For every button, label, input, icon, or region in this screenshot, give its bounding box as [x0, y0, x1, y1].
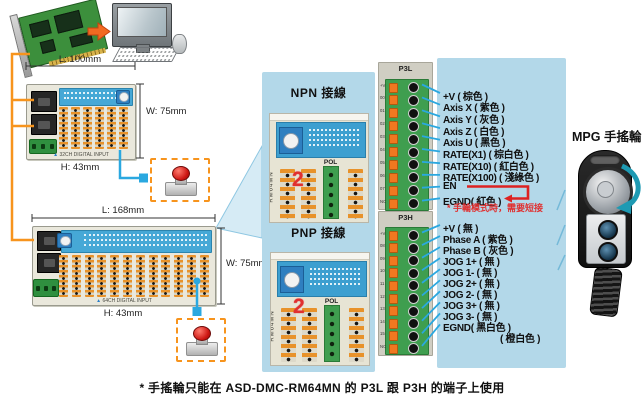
terminal-column — [71, 107, 80, 149]
keyboard — [112, 47, 180, 62]
callout-wedge — [216, 146, 262, 238]
pin-number-label: NC — [380, 344, 386, 349]
small-module-width-label: W: 75mm — [146, 106, 186, 117]
pin-number-label: 14 — [380, 319, 385, 324]
pin-number-label: 05 — [380, 160, 385, 165]
terminal-column — [59, 255, 68, 297]
pendant-face — [586, 214, 626, 264]
terminal-lever — [389, 256, 398, 266]
terminal-lever — [389, 83, 398, 93]
terminal-column — [161, 255, 170, 297]
terminal-column — [187, 255, 196, 297]
footer-note: * 手搖輪只能在 ASD-DMC-RM64MN 的 P3L 跟 P3H 的端子上… — [0, 379, 644, 396]
terminal-lever — [389, 134, 398, 144]
io-module-small: ▲ 32CH DIGITAL INPUT — [26, 84, 136, 160]
power-connector — [33, 279, 59, 297]
terminal-hole — [408, 121, 419, 132]
p3h-signal-label: ( 橙白色 ) — [500, 330, 540, 345]
terminal-column — [95, 107, 104, 149]
pin-number-label: 09 — [380, 256, 385, 261]
pin-number-label: 02 — [380, 122, 385, 127]
terminal-hole — [408, 230, 419, 241]
label-strip — [61, 230, 212, 253]
pin-number-label: 08 — [380, 244, 385, 249]
mouse — [172, 34, 187, 54]
terminal-lever — [389, 160, 398, 170]
terminal-column — [85, 255, 94, 297]
terminal-lever — [389, 173, 398, 183]
pin-number-label: NC — [380, 199, 386, 204]
terminal-column — [174, 255, 183, 297]
pnp-jumper-mark: 2 — [293, 297, 305, 317]
terminal-lever — [389, 331, 398, 341]
rotary-switch-icon — [116, 90, 130, 104]
terminal-lever — [389, 294, 398, 304]
terminal-lever — [389, 306, 398, 316]
large-module-length-label: L: 168mm — [75, 205, 171, 216]
terminal-row — [386, 229, 428, 240]
chip — [40, 39, 56, 54]
p3l-header: P3L — [379, 64, 432, 73]
terminal-hole — [408, 243, 419, 254]
p3h-header: P3H — [379, 213, 432, 222]
p3h-terminal-block: P3H +V0809101112131415NC — [378, 211, 433, 356]
estop-button — [172, 166, 190, 181]
terminal-row — [386, 242, 428, 253]
terminal-row — [386, 158, 428, 169]
chip — [29, 20, 52, 38]
terminal-lever — [389, 186, 398, 196]
terminal-lever — [389, 121, 398, 131]
npn-photo: RM64MN POL 2 — [269, 113, 369, 223]
pin-number-label: 03 — [380, 135, 385, 140]
terminal-hole — [408, 134, 419, 145]
mpg-pendant — [578, 150, 632, 268]
photo-label-strip — [276, 122, 366, 158]
wire-node — [139, 174, 148, 183]
large-module-height-label: H: 43mm — [78, 308, 168, 319]
handwheel-mode-note: * 手輪模式時，需要短接 — [447, 201, 543, 214]
terminal-lever — [389, 344, 398, 354]
terminal-row — [386, 94, 428, 105]
module-bottom-label: ▲ 64CH DIGITAL INPUT — [33, 298, 215, 304]
monitor — [112, 3, 172, 47]
terminal-field — [59, 107, 131, 149]
terminal-hole — [408, 95, 419, 106]
rj45-port — [31, 91, 57, 112]
terminal-row — [386, 107, 428, 118]
terminal-lever — [389, 319, 398, 329]
chip — [69, 32, 93, 48]
terminal-lever — [389, 281, 398, 291]
io-module-large: ▲ 64CH DIGITAL INPUT — [32, 226, 216, 306]
terminal-column — [59, 107, 68, 149]
terminal-row — [386, 81, 428, 92]
pin-number-label: 13 — [380, 307, 385, 312]
pin-number-label: 01 — [380, 109, 385, 114]
terminal-hole — [408, 82, 419, 93]
p3l-terminal-strip — [385, 79, 429, 211]
rotary-switch-icon — [57, 233, 72, 248]
small-module-length-label: L: 100mm — [40, 54, 120, 65]
estop-button — [193, 326, 211, 341]
pendant-handle-slot — [590, 155, 620, 164]
terminal-column — [97, 255, 106, 297]
terminal-row — [386, 292, 428, 303]
p3h-terminal-strip — [385, 227, 429, 355]
small-module-height-label: H: 43mm — [40, 162, 120, 173]
rotary-switch-icon — [280, 266, 304, 293]
terminal-column — [107, 107, 116, 149]
photo-label-strip — [277, 261, 367, 297]
terminal-column — [200, 255, 209, 297]
terminal-row — [386, 330, 428, 341]
terminal-hole — [408, 255, 419, 266]
terminal-column — [348, 169, 363, 219]
terminal-row — [386, 197, 428, 208]
pnp-section-title: PNP 接線 — [262, 224, 375, 241]
terminal-lever — [389, 199, 398, 209]
terminal-hole — [408, 185, 419, 196]
axis-selector-knob — [598, 220, 618, 240]
estop-box — [150, 158, 210, 202]
terminal-hole — [408, 159, 419, 170]
terminal-column — [136, 255, 145, 297]
rotary-switch-icon — [279, 127, 303, 154]
terminal-hole — [408, 147, 419, 158]
wiring-diagram: L: 100mm ▲ 32CH DIGITAL INPUT W: 75mm H:… — [0, 0, 644, 412]
terminal-row — [386, 267, 428, 278]
pin-number-label: 15 — [380, 332, 385, 337]
pin-number-label: 11 — [380, 281, 384, 286]
rj45-port — [31, 114, 57, 135]
pin-number-label: +V — [380, 83, 385, 88]
monitor-screen — [117, 7, 167, 37]
delta-logo: ▲ — [96, 298, 101, 304]
pol-label: POL — [324, 159, 337, 166]
pin-number-label: 00 — [380, 96, 385, 101]
delta-logo: ▲ — [53, 152, 58, 158]
p3l-signal-label: EN — [443, 181, 456, 192]
terminal-hole — [408, 172, 419, 183]
terminal-row — [386, 171, 428, 182]
terminal-row — [386, 120, 428, 131]
terminal-hole — [408, 343, 419, 354]
p3l-terminal-block: P3L +V0001020304050607NC — [378, 62, 433, 210]
wiring-mode-panel: NPN 接線 RM64MN POL 2 PNP 接線 RM64MN POL — [262, 72, 375, 372]
terminal-hole — [408, 268, 419, 279]
estop-box — [176, 318, 226, 362]
chip — [54, 10, 84, 34]
npn-section-title: NPN 接線 — [262, 84, 375, 101]
terminal-column — [349, 308, 364, 362]
terminal-row — [386, 133, 428, 144]
terminal-lever — [389, 268, 398, 278]
model-label: RM64MN — [269, 171, 275, 202]
rj45-port — [37, 253, 61, 273]
terminal-hole — [408, 198, 419, 209]
terminal-column — [110, 255, 119, 297]
module-bottom-label: ▲ 32CH DIGITAL INPUT — [27, 152, 135, 158]
npn-jumper-mark: 2 — [292, 170, 304, 190]
terminal-row — [386, 342, 428, 353]
terminal-hole — [408, 318, 419, 329]
p3l-signal-label: RATE(X100) ( 淺綠色 ) — [443, 169, 539, 184]
label-strip — [59, 88, 133, 106]
pol-label: POL — [325, 298, 338, 305]
terminal-lever — [389, 95, 398, 105]
mpg-cable-coil — [589, 266, 623, 317]
terminal-field — [59, 255, 215, 297]
terminal-row — [386, 305, 428, 316]
terminal-lever — [389, 231, 398, 241]
terminal-hole — [408, 306, 419, 317]
mpg-title: MPG 手搖輪 — [572, 126, 641, 145]
terminal-column — [123, 255, 132, 297]
model-label: RM64MN — [270, 310, 276, 341]
wire-node — [193, 307, 202, 316]
terminal-hole — [408, 293, 419, 304]
rate-selector-knob — [598, 242, 618, 262]
pin-number-label: 12 — [380, 294, 385, 299]
terminal-hole — [408, 331, 419, 342]
pin-number-label: +V — [380, 231, 385, 236]
terminal-hole — [408, 280, 419, 291]
dimension-line-width-small — [136, 84, 144, 158]
terminal-lever — [389, 243, 398, 253]
handwheel-hub — [597, 181, 614, 198]
terminal-lever — [389, 108, 398, 118]
pin-number-label: 04 — [380, 147, 385, 152]
large-module-width-label: W: 75mm — [226, 258, 266, 269]
terminal-column — [83, 107, 92, 149]
terminal-row — [386, 146, 428, 157]
terminal-row — [386, 317, 428, 328]
terminal-column — [119, 107, 128, 149]
pol-terminal-column — [324, 305, 340, 362]
terminal-row — [386, 184, 428, 195]
terminal-column — [149, 255, 158, 297]
dimension-line-width-large — [217, 228, 225, 304]
pin-number-label: 10 — [380, 269, 385, 274]
terminal-lever — [389, 147, 398, 157]
terminal-row — [386, 279, 428, 290]
pnp-photo: RM64MN POL 2 — [270, 252, 370, 366]
pin-number-label: 06 — [380, 173, 385, 178]
pin-number-label: 07 — [380, 186, 385, 191]
terminal-column — [72, 255, 81, 297]
terminal-row — [386, 254, 428, 265]
terminal-hole — [408, 108, 419, 119]
pol-terminal-column — [323, 166, 339, 219]
